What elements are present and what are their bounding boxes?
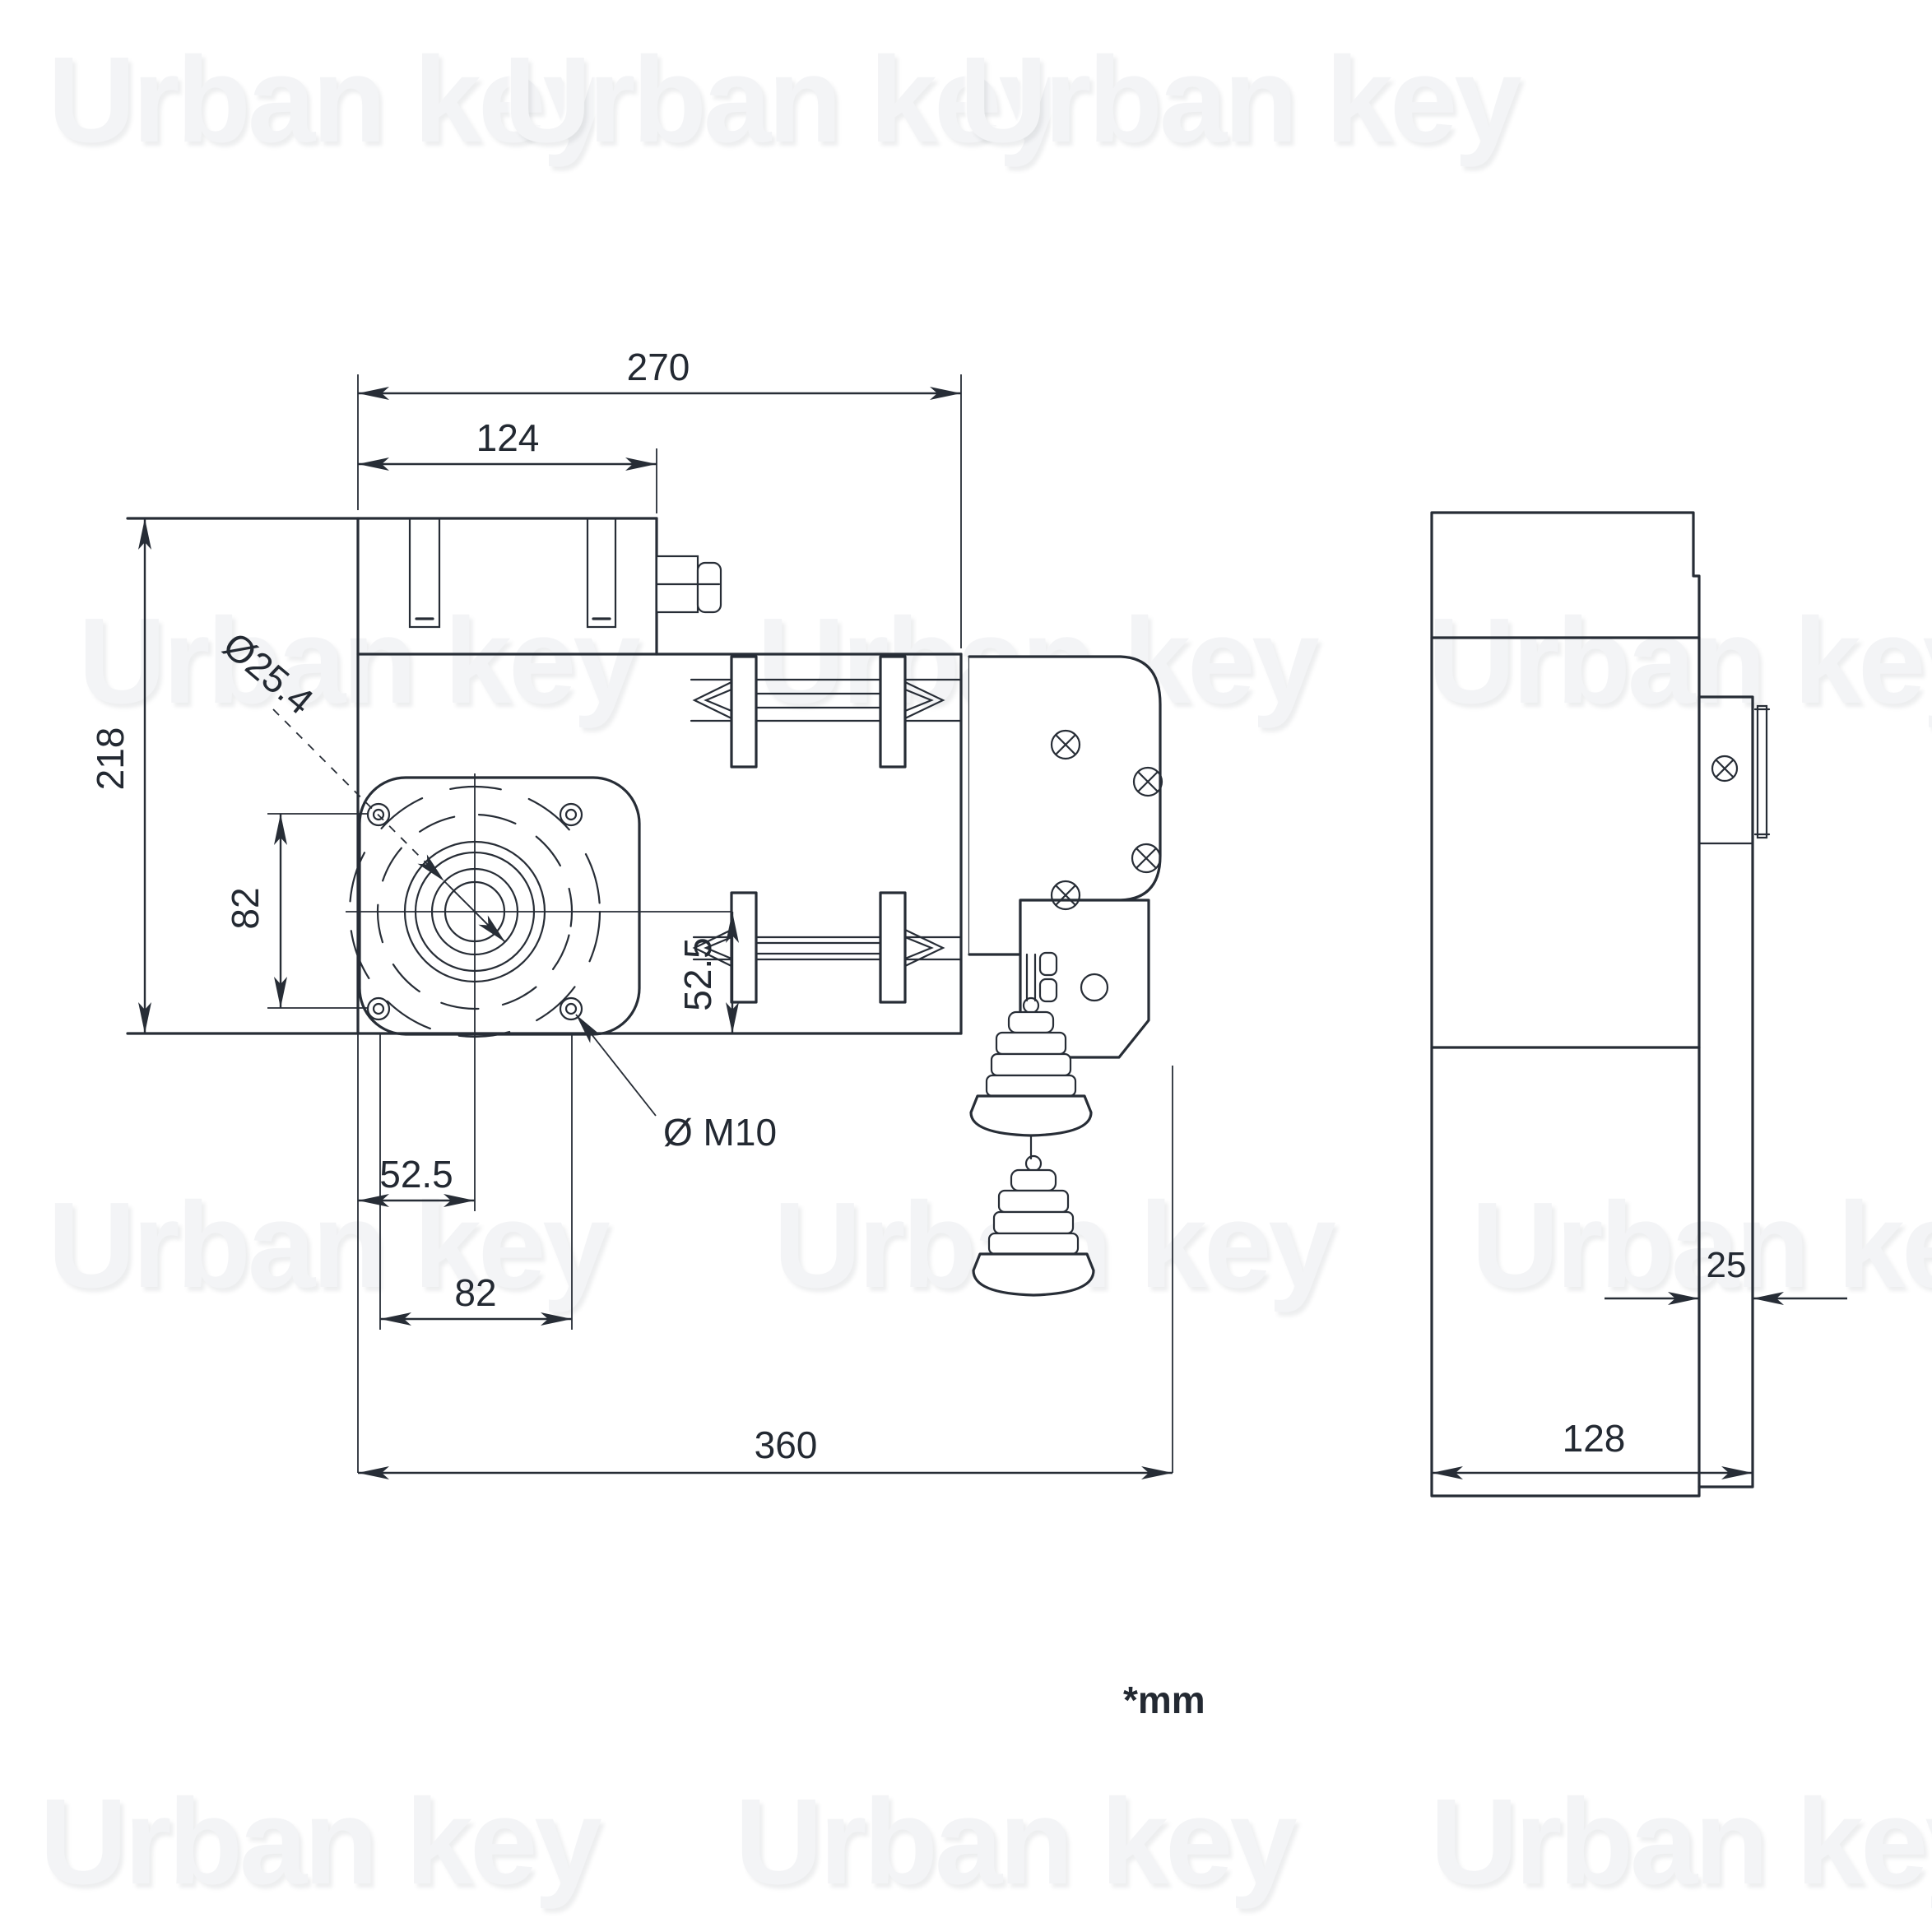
phillips-screw-cross — [1716, 760, 1733, 777]
dim-360-label: 360 — [755, 1423, 818, 1466]
dim-124: 124 — [358, 416, 657, 513]
shaft-inner-lines — [756, 694, 880, 708]
bearing-cone-left — [694, 682, 731, 718]
dim-m10-label: Ø M10 — [663, 1111, 777, 1154]
dim-82-bottom: 82 — [380, 1271, 572, 1319]
sprocket-flange-plate — [731, 893, 756, 1002]
sprocket-flange-plate — [880, 657, 905, 767]
dim-360: 360 — [358, 1423, 1173, 1473]
dim-bore-label: Ø25.4 — [216, 624, 322, 722]
flange-square — [360, 778, 639, 1034]
cable-gland-cap — [698, 563, 721, 612]
sprocket-flange-plate — [880, 893, 905, 1002]
dim-218-label: 218 — [89, 727, 132, 791]
upper-sprocket-shaft — [691, 657, 961, 767]
dim-52-5-bottom-label: 52.5 — [379, 1153, 453, 1196]
top-block-slot — [587, 518, 615, 627]
dim-124-label: 124 — [476, 416, 540, 459]
lower-sprocket-shaft — [694, 893, 961, 1002]
dim-270-label: 270 — [627, 346, 690, 388]
dim-52-5-right-label: 52.5 — [676, 937, 719, 1011]
dim-25-label: 25 — [1707, 1245, 1747, 1285]
dim-218: 218 — [89, 518, 145, 1033]
chain-grip-lower — [973, 1156, 1094, 1295]
shaft-inner-lines — [756, 943, 880, 954]
side-body — [1432, 513, 1699, 1496]
side-rail-tab — [1758, 706, 1767, 838]
sprocket-flange-plate — [731, 657, 756, 767]
side-rail — [1699, 697, 1753, 1487]
top-block-slot — [410, 518, 439, 627]
technical-drawing: 270 124 218 82 Ø25.4 52.5 — [0, 0, 1932, 1932]
units-note: *mm — [1123, 1679, 1205, 1721]
front-view — [128, 518, 1162, 1295]
dim-128-label: 128 — [1563, 1417, 1626, 1460]
dim-82-left: 82 — [224, 814, 369, 1008]
dim-52-5-bottom: 52.5 — [358, 1153, 475, 1201]
bearing-cone-right — [905, 930, 943, 966]
dim-128: 128 — [1432, 1417, 1753, 1473]
dim-82-left-label: 82 — [224, 887, 267, 929]
dim-25: 25 — [1605, 1245, 1847, 1298]
chain-bracket — [969, 657, 1162, 1057]
dim-52-5-right: 52.5 — [676, 912, 732, 1033]
side-view — [1432, 513, 1769, 1496]
dimensions: 270 124 218 82 Ø25.4 52.5 — [89, 346, 1847, 1473]
dim-82-bottom-label: 82 — [454, 1271, 496, 1314]
bearing-cone-right — [905, 682, 943, 718]
dim-m10: Ø M10 — [576, 1015, 777, 1154]
